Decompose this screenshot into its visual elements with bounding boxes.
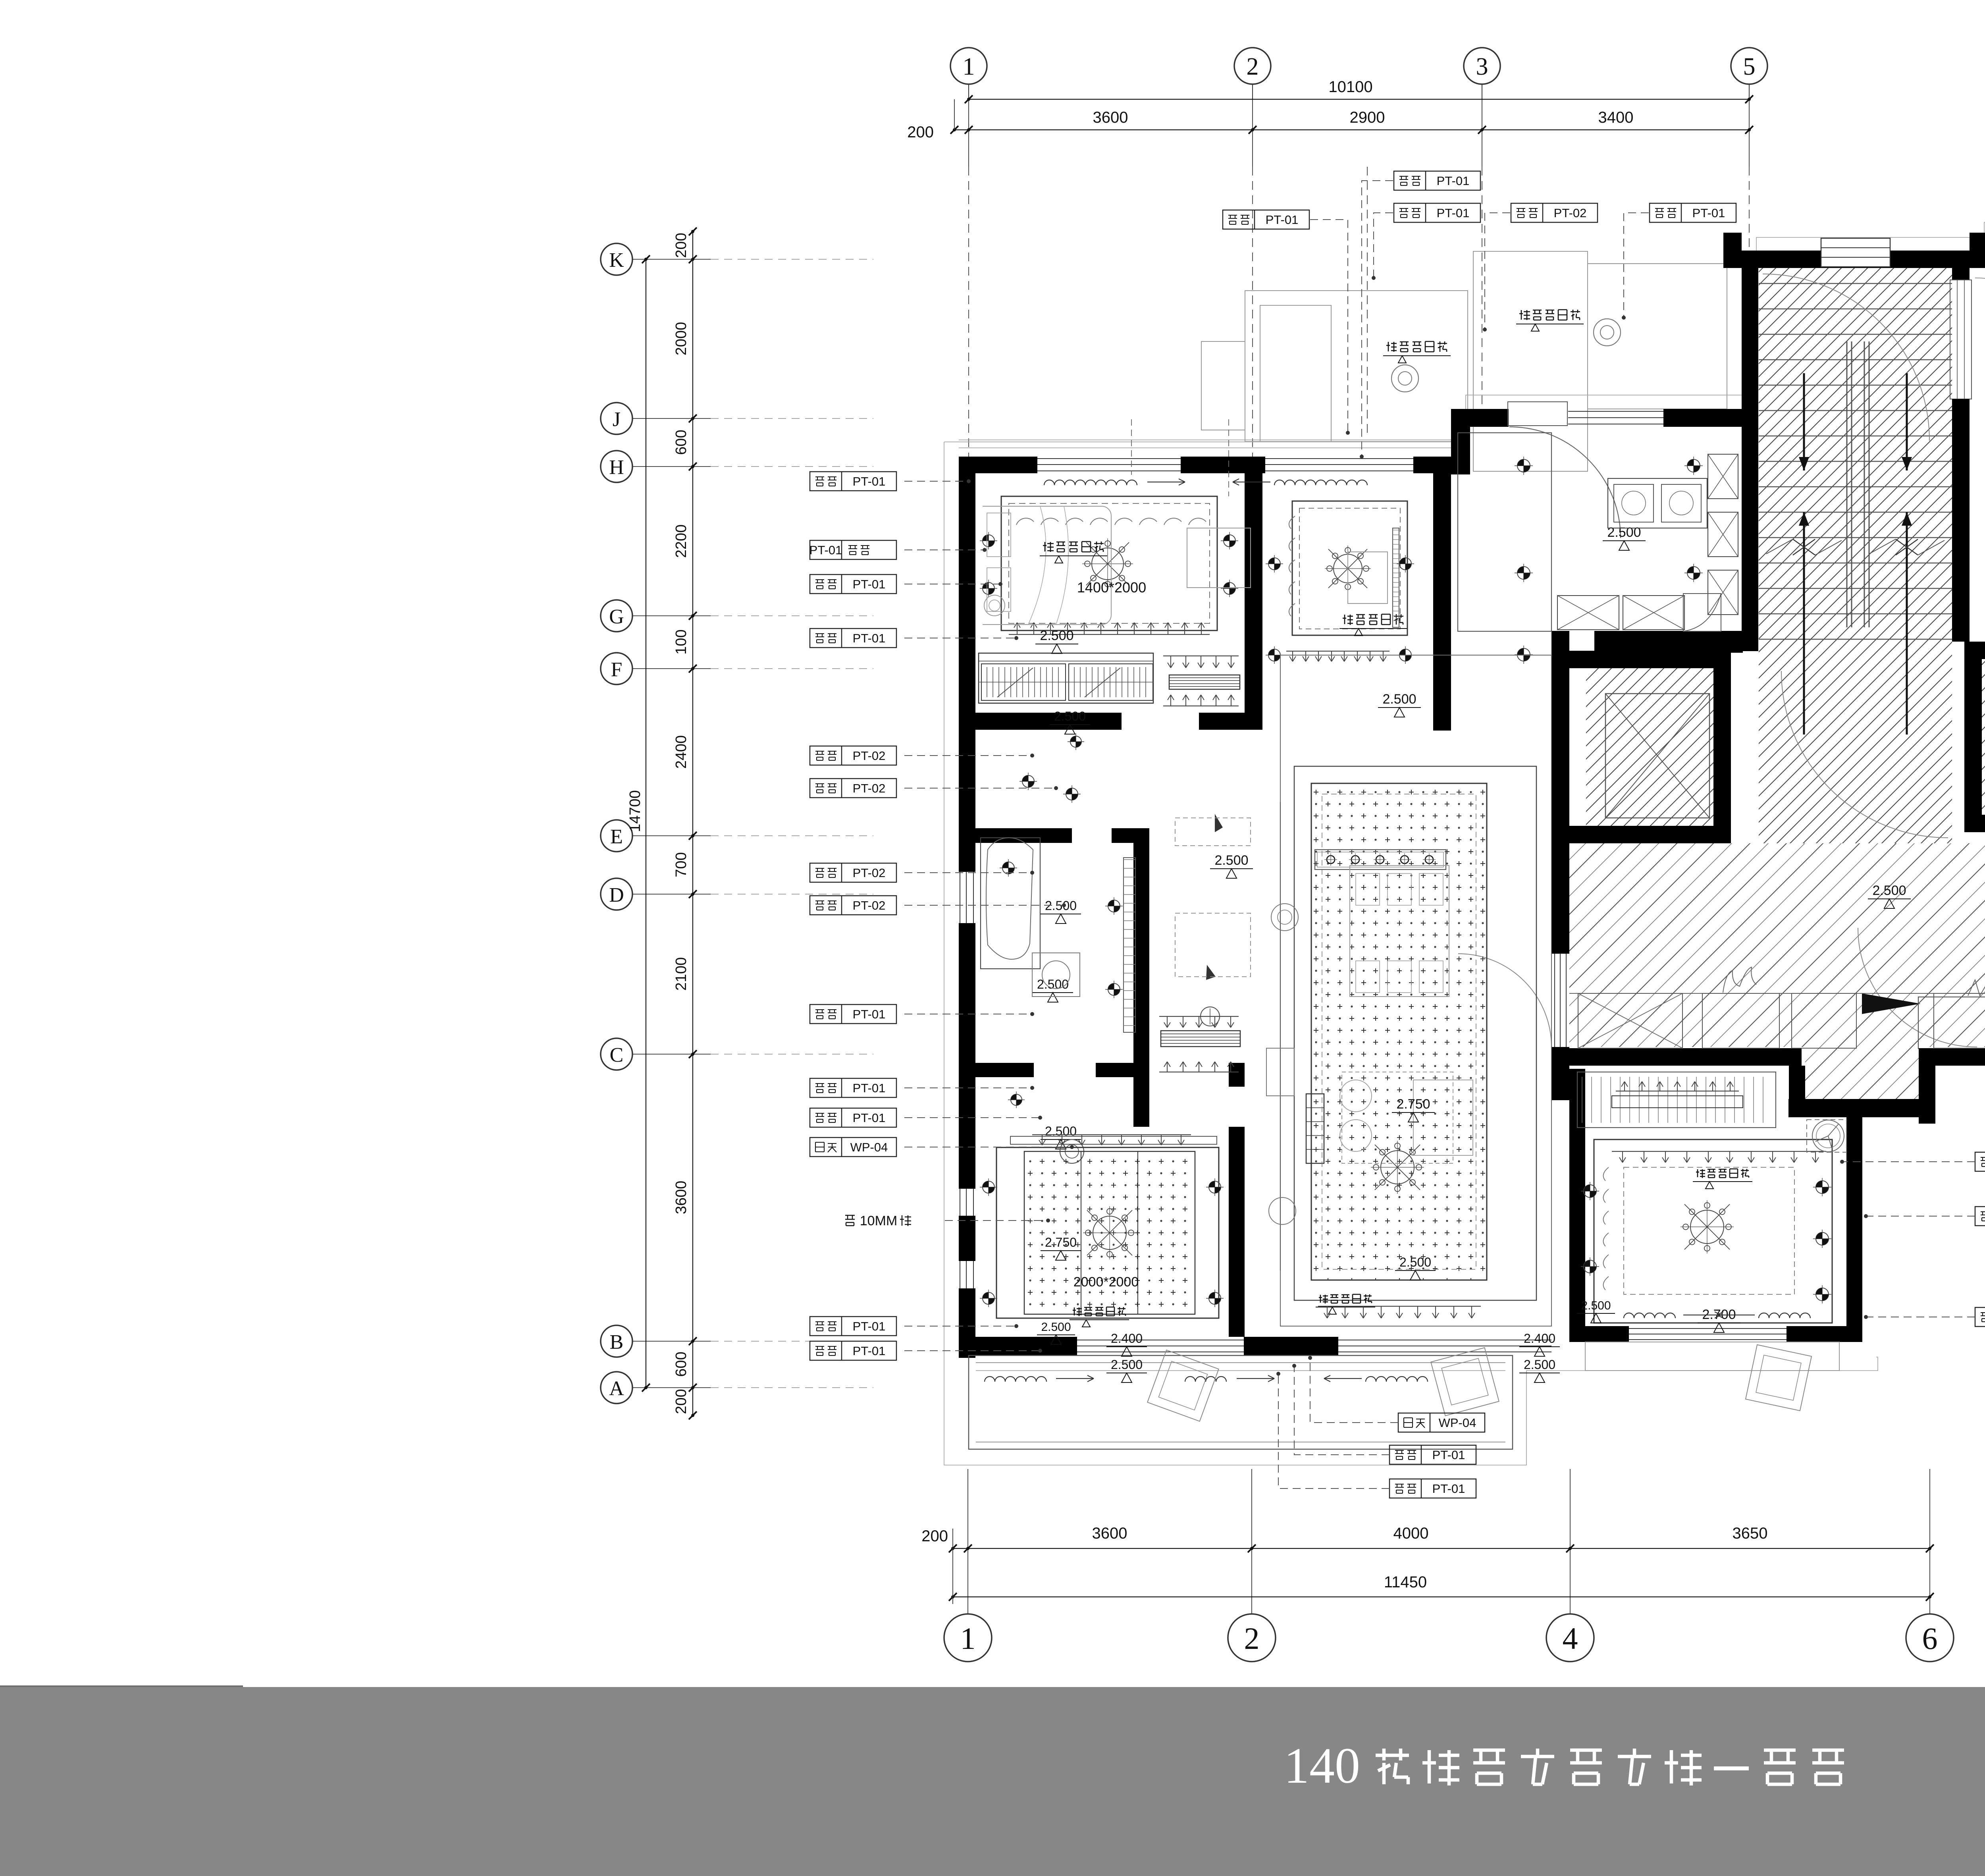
svg-text:C: C <box>610 1044 624 1066</box>
svg-text:3600: 3600 <box>1092 1525 1127 1542</box>
svg-text:PT-01: PT-01 <box>1692 206 1725 220</box>
svg-text:2: 2 <box>1247 53 1259 80</box>
svg-text:2.400: 2.400 <box>1524 1331 1555 1346</box>
svg-text:PT-01: PT-01 <box>853 1111 886 1125</box>
svg-text:2.500: 2.500 <box>1581 1299 1611 1312</box>
svg-text:1400*2000: 1400*2000 <box>1077 579 1146 596</box>
svg-text:10MM: 10MM <box>860 1213 897 1228</box>
svg-text:2.500: 2.500 <box>1399 1255 1431 1269</box>
svg-text:F: F <box>611 658 622 681</box>
svg-text:2200: 2200 <box>673 524 690 558</box>
svg-text:PT-01: PT-01 <box>1432 1482 1465 1496</box>
svg-text:D: D <box>609 884 624 906</box>
svg-text:2.400: 2.400 <box>1111 1331 1143 1346</box>
svg-text:2.500: 2.500 <box>1040 628 1073 643</box>
svg-text:5: 5 <box>1743 53 1756 80</box>
svg-text:PT-01: PT-01 <box>853 474 886 488</box>
svg-text:2000: 2000 <box>673 322 690 356</box>
svg-text:E: E <box>610 825 623 848</box>
svg-text:PT-01: PT-01 <box>853 577 886 591</box>
svg-text:PT-01: PT-01 <box>853 631 886 645</box>
svg-text:700: 700 <box>673 852 690 877</box>
svg-text:2.500: 2.500 <box>1872 883 1906 898</box>
svg-text:A: A <box>609 1377 624 1400</box>
svg-text:3400: 3400 <box>1598 109 1634 126</box>
svg-text:PT-01: PT-01 <box>853 1344 886 1358</box>
svg-text:PT-01: PT-01 <box>853 1007 886 1021</box>
svg-text:4: 4 <box>1563 1621 1578 1656</box>
svg-text:PT-02: PT-02 <box>853 749 886 763</box>
svg-text:PT-01: PT-01 <box>1437 174 1470 188</box>
svg-text:PT-01: PT-01 <box>1437 206 1470 220</box>
svg-text:PT-01: PT-01 <box>809 543 842 557</box>
svg-text:1: 1 <box>963 53 975 80</box>
svg-text:2100: 2100 <box>673 957 690 991</box>
svg-text:3: 3 <box>1476 53 1488 80</box>
svg-text:PT-02: PT-02 <box>853 866 886 880</box>
svg-text:2.500: 2.500 <box>1382 692 1416 707</box>
svg-text:100: 100 <box>673 629 690 654</box>
svg-text:3600: 3600 <box>1093 109 1128 126</box>
svg-text:WP-04: WP-04 <box>1439 1416 1476 1430</box>
svg-text:2.750: 2.750 <box>1045 1235 1077 1249</box>
svg-text:200: 200 <box>673 233 690 258</box>
svg-text:2.500: 2.500 <box>1214 853 1248 868</box>
svg-text:2.500: 2.500 <box>1607 525 1641 540</box>
svg-text:140: 140 <box>1284 1737 1360 1794</box>
svg-text:2000*2000: 2000*2000 <box>1073 1274 1139 1290</box>
svg-text:3600: 3600 <box>673 1181 690 1215</box>
svg-text:11450: 11450 <box>1384 1573 1427 1591</box>
svg-text:6: 6 <box>1922 1621 1938 1656</box>
svg-text:600: 600 <box>673 1352 690 1377</box>
svg-text:2.500: 2.500 <box>1041 1321 1071 1334</box>
svg-text:K: K <box>609 249 624 272</box>
svg-text:200: 200 <box>673 1389 690 1414</box>
svg-text:2900: 2900 <box>1350 109 1385 126</box>
svg-text:3650: 3650 <box>1733 1525 1768 1542</box>
svg-text:2.500: 2.500 <box>1524 1357 1555 1372</box>
svg-text:PT-01: PT-01 <box>1432 1448 1465 1462</box>
svg-text:PT-02: PT-02 <box>853 781 886 795</box>
svg-text:200: 200 <box>907 123 934 141</box>
svg-text:10100: 10100 <box>1328 78 1372 96</box>
svg-text:WP-04: WP-04 <box>850 1140 888 1154</box>
svg-text:J: J <box>613 408 621 431</box>
svg-text:2.500: 2.500 <box>1111 1357 1143 1372</box>
svg-text:14700: 14700 <box>627 790 644 832</box>
svg-text:G: G <box>609 605 624 628</box>
svg-text:2.500: 2.500 <box>1054 709 1086 723</box>
svg-text:2.750: 2.750 <box>1396 1097 1430 1112</box>
svg-text:B: B <box>610 1331 624 1353</box>
svg-text:PT-01: PT-01 <box>853 1081 886 1095</box>
svg-text:2: 2 <box>1244 1621 1260 1656</box>
svg-text:600: 600 <box>673 430 690 455</box>
svg-text:2400: 2400 <box>673 735 690 769</box>
svg-text:PT-02: PT-02 <box>1554 206 1587 220</box>
svg-text:200: 200 <box>921 1527 948 1545</box>
svg-text:PT-01: PT-01 <box>853 1319 886 1333</box>
svg-text:4000: 4000 <box>1393 1525 1429 1542</box>
svg-text:1: 1 <box>960 1621 976 1656</box>
svg-text:PT-02: PT-02 <box>853 898 886 912</box>
svg-text:PT-01: PT-01 <box>1266 213 1299 227</box>
svg-text:H: H <box>609 456 624 479</box>
svg-text:2.500: 2.500 <box>1037 977 1069 991</box>
